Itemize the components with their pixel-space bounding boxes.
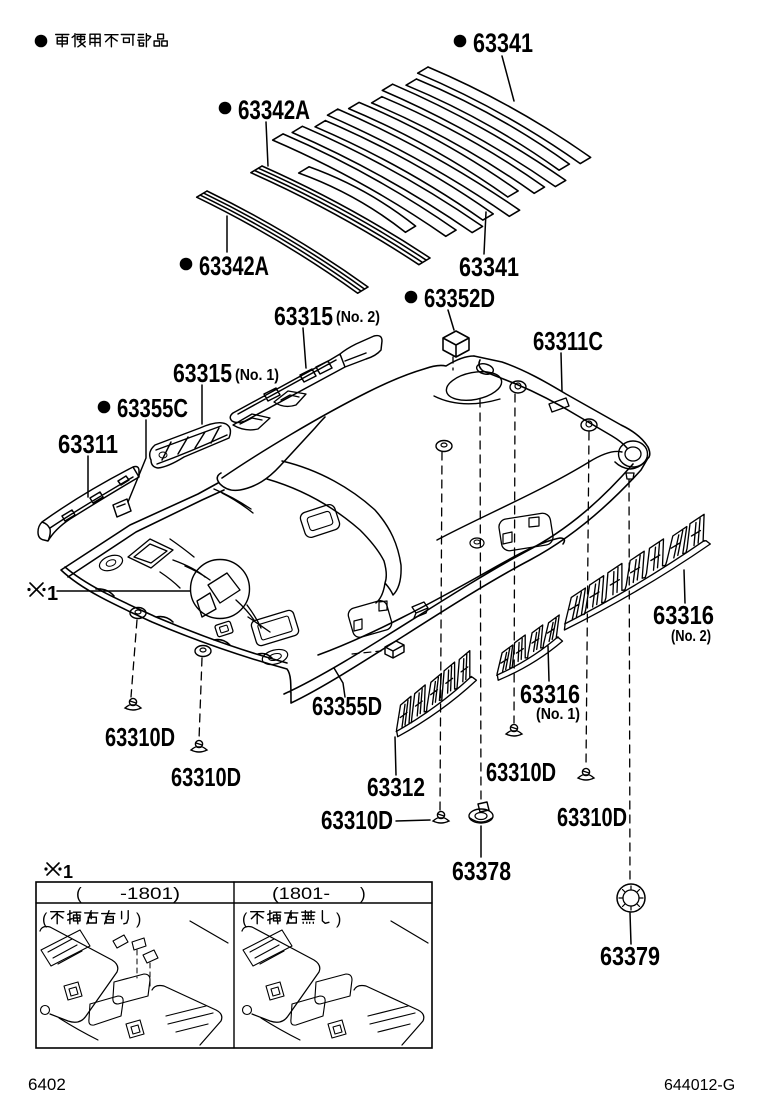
svg-text:644012-G: 644012-G <box>664 1077 735 1094</box>
svg-text:63341: 63341 <box>459 252 519 282</box>
svg-text:1: 1 <box>63 862 73 882</box>
svg-text:63311: 63311 <box>58 429 118 459</box>
svg-text:(No. 1): (No. 1) <box>536 706 580 723</box>
svg-text:(No. 2): (No. 2) <box>336 309 380 326</box>
svg-text:63316: 63316 <box>520 679 580 709</box>
svg-text:63315: 63315 <box>274 301 333 331</box>
svg-text:63316: 63316 <box>653 600 714 630</box>
svg-text:): ) <box>136 911 141 928</box>
svg-text:63310D: 63310D <box>171 762 241 792</box>
svg-text:63355D: 63355D <box>312 691 382 721</box>
svg-text:63312: 63312 <box>367 772 425 802</box>
svg-text:63311C: 63311C <box>533 326 603 356</box>
svg-text:63310D: 63310D <box>486 757 556 787</box>
svg-text:63342A: 63342A <box>238 95 310 125</box>
svg-text:(: ( <box>76 884 82 903</box>
svg-text:63310D: 63310D <box>557 802 627 832</box>
svg-text:63310D: 63310D <box>105 722 175 752</box>
svg-text:): ) <box>336 911 341 928</box>
svg-text:(No. 2): (No. 2) <box>671 628 711 645</box>
svg-text:63378: 63378 <box>452 856 511 886</box>
svg-text:63355C: 63355C <box>117 393 188 423</box>
svg-text:(: ( <box>42 911 48 928</box>
svg-text:(: ( <box>242 911 248 928</box>
svg-text:63352D: 63352D <box>424 283 495 313</box>
svg-text:): ) <box>360 884 366 903</box>
svg-text:(No. 1): (No. 1) <box>235 367 279 384</box>
svg-text:(1801-: (1801- <box>272 884 330 903</box>
svg-text:63341: 63341 <box>473 28 533 58</box>
svg-text:1: 1 <box>47 583 58 605</box>
svg-text:-1801): -1801) <box>120 884 180 903</box>
svg-text:6402: 6402 <box>28 1075 66 1094</box>
svg-text:63310D: 63310D <box>321 805 393 835</box>
svg-text:63342A: 63342A <box>199 251 269 281</box>
svg-text:63379: 63379 <box>600 941 660 971</box>
svg-text:63315: 63315 <box>173 358 232 388</box>
